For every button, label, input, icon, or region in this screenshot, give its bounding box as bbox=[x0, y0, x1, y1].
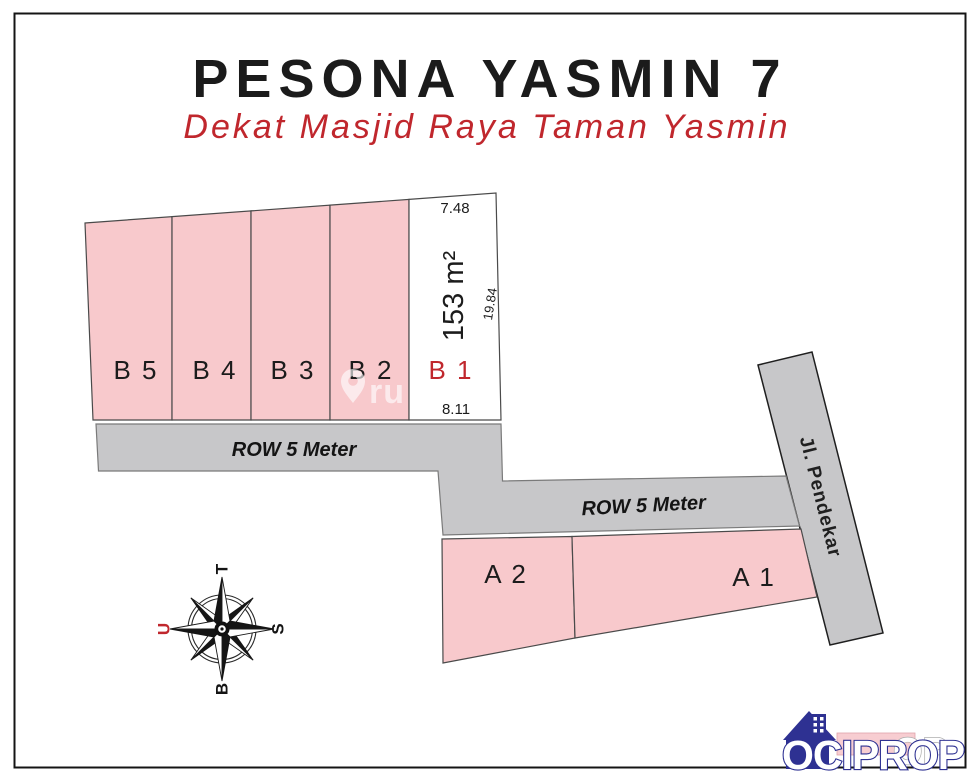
compass-hub-dot bbox=[220, 627, 223, 630]
road-row1-label: ROW 5 Meter bbox=[232, 439, 358, 461]
logo: OP OCIPROP bbox=[782, 711, 964, 778]
watermark-text: ru bbox=[369, 373, 405, 411]
plot-a2 bbox=[442, 537, 575, 664]
compass-needle-n bbox=[214, 577, 230, 629]
plot-b4 bbox=[172, 211, 251, 420]
plot-a1 bbox=[572, 529, 817, 638]
plot-a2-label: A 2 bbox=[484, 559, 528, 589]
plot-b5 bbox=[85, 217, 172, 420]
site-plan-canvas: PESONA YASMIN 7 Dekat Masjid Raya Taman … bbox=[0, 0, 980, 782]
compass-label-right: S bbox=[269, 623, 288, 634]
compass-label-top: T bbox=[213, 563, 232, 574]
plot-b5-label: B 5 bbox=[113, 355, 158, 385]
measurement-bottom-width: 8.11 bbox=[442, 401, 470, 418]
road-network bbox=[96, 424, 800, 535]
measurement-area: 153 m² bbox=[438, 251, 470, 342]
site-plan-svg: PESONA YASMIN 7 Dekat Masjid Raya Taman … bbox=[0, 0, 980, 782]
logo-text: OCIPROP bbox=[782, 732, 964, 778]
compass-label-bottom: B bbox=[213, 683, 232, 695]
measurement-top-width: 7.48 bbox=[440, 200, 469, 217]
compass-needle-e bbox=[222, 621, 274, 637]
compass-needle-s bbox=[214, 629, 230, 681]
plot-a1-label: A 1 bbox=[732, 562, 776, 592]
plot-b3-label: B 3 bbox=[270, 355, 315, 385]
compass-label-left: U bbox=[155, 623, 174, 635]
compass-rose: T U S B bbox=[155, 563, 288, 695]
plot-b1-label: B 1 bbox=[428, 355, 473, 385]
plot-b4-label: B 4 bbox=[192, 355, 237, 385]
page-title: PESONA YASMIN 7 bbox=[192, 49, 787, 109]
page-subtitle: Dekat Masjid Raya Taman Yasmin bbox=[183, 108, 790, 146]
compass-needle-w bbox=[170, 621, 222, 637]
plot-b3 bbox=[251, 205, 330, 420]
